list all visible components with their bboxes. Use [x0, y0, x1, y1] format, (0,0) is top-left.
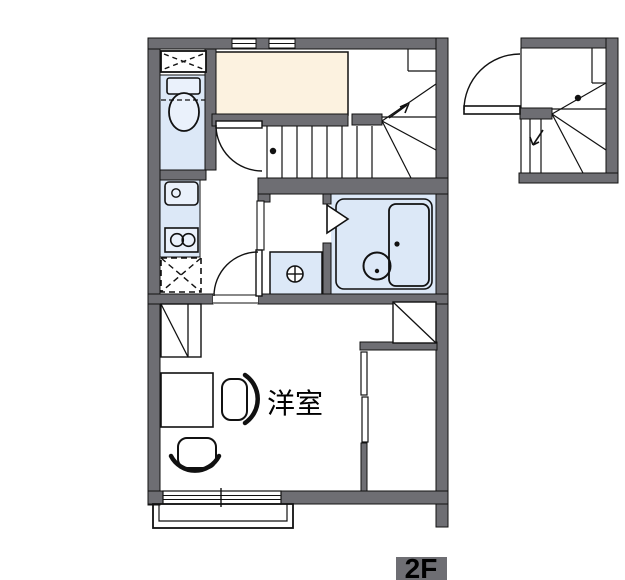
floor-plan-page: 洋室 2F	[0, 0, 625, 580]
stair-start-dot	[270, 148, 276, 154]
detail-wall-right	[606, 38, 618, 183]
winder-line-1	[382, 84, 436, 121]
winder-line-2	[382, 121, 436, 150]
washroom-hinged-door	[214, 201, 264, 296]
bathroom-floor	[331, 194, 436, 294]
kitchen-sink-icon	[165, 182, 198, 205]
wall-bath-left-upper	[323, 194, 331, 204]
room-entry-doorway	[213, 294, 258, 304]
chair-icon-2	[171, 438, 219, 471]
hall-doors	[213, 121, 264, 304]
tub-drain-dot	[394, 241, 399, 246]
refrigerator-space-icon	[161, 258, 201, 292]
gas-stove-icon	[165, 228, 198, 252]
floor-label-group: 2F	[396, 553, 447, 580]
up-arrow-icon	[389, 103, 409, 118]
room-label: 洋室	[267, 388, 323, 419]
detail-winder-3	[552, 114, 583, 173]
floor-label: 2F	[405, 553, 438, 580]
wall-under-stairs	[258, 178, 448, 194]
shelf-left-diagonal	[161, 304, 201, 357]
top-window-2	[269, 39, 295, 48]
washroom	[287, 266, 303, 282]
closet-hinged-door	[216, 121, 262, 171]
closet-over-stairs	[212, 52, 348, 115]
balcony	[153, 504, 293, 528]
floor-plan-canvas: 洋室 2F	[0, 0, 625, 580]
washer-pan-drain-icon	[287, 266, 303, 282]
wall-toilet-bottom	[160, 170, 206, 180]
wall-stair-stub	[352, 114, 382, 125]
kitchen	[161, 182, 201, 292]
detail-wall-top	[521, 38, 618, 48]
stair-detail	[464, 38, 618, 183]
winder-line-3	[382, 121, 411, 178]
bath-drain-dot	[375, 269, 379, 273]
desk-icon	[161, 373, 213, 427]
western-room: 洋室	[161, 302, 436, 471]
wall-right	[436, 38, 448, 527]
detail-wall-bottom	[519, 173, 618, 183]
chair-icon-1	[222, 375, 258, 423]
wall-left	[148, 38, 160, 505]
detail-stair-stub	[520, 108, 552, 119]
shelf-right-diagonal	[393, 302, 436, 343]
wall-top	[148, 38, 448, 49]
wall-kitchen-bottom	[148, 294, 213, 304]
detail-winder-2	[552, 114, 606, 150]
wall-closet-left-lower	[361, 443, 367, 491]
detail-entry-door	[464, 54, 520, 114]
closet-sliding-doors	[361, 352, 368, 442]
top-window-1	[232, 39, 256, 48]
storage-shelf-hatch	[161, 51, 206, 72]
detail-stair-dot	[575, 95, 581, 101]
wall-bath-left-lower	[323, 243, 331, 294]
